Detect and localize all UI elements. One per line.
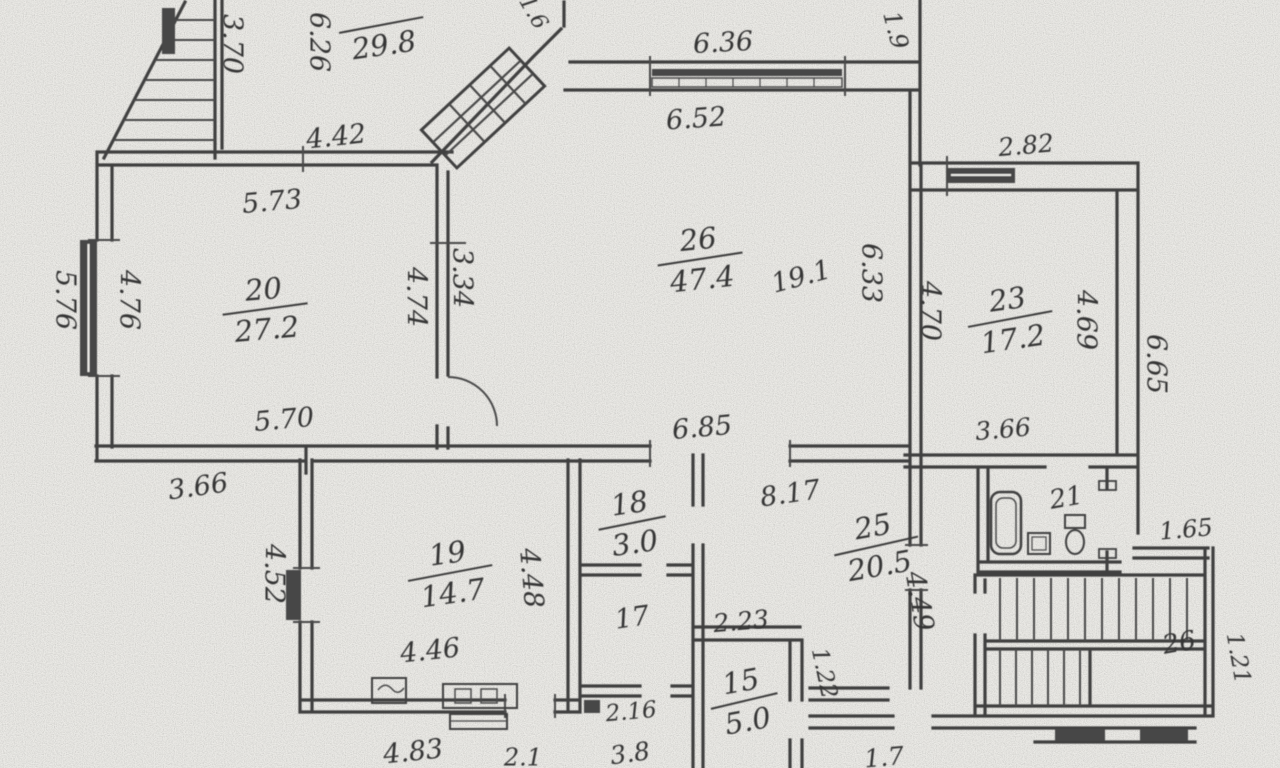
dimension-label: 6.36 [692,26,754,60]
room-number: 26 [1159,625,1198,660]
scan-grain-texture [0,0,1280,768]
dimension-label: 6.26 [304,12,335,72]
dimension-label: 4.46 [398,632,462,669]
room-label-number: 19 [427,534,468,573]
dimension-label: 2.1 [503,743,542,768]
room-label-area: 47.4 [667,259,736,300]
scanned-floor-plan-page: 3.706.264.421.66.361.96.522.825.734.765.… [0,0,1280,768]
room-label-number: 20 [242,271,283,308]
dimension-label: 3.8 [608,736,651,768]
dimension-label: 4.74 [401,266,432,327]
entry-stairs-wall-fill [162,8,175,54]
room-number: 21 [1046,480,1085,515]
dimension-label: 4.76 [114,269,145,330]
dimension-label: 6.33 [856,243,887,303]
window-room26-top [652,69,842,76]
dimension-label: 3.70 [217,14,248,74]
dimension-label: 6.52 [665,101,727,136]
dimension-label: 2.82 [996,128,1055,162]
dimension-label: 4.69 [1071,289,1102,350]
room-label-area: 27.2 [232,309,300,349]
dimension-label: 5.76 [50,270,81,330]
room-label-number: 25 [851,506,894,546]
window-bottom-right-b [1140,729,1188,741]
room-number: 17 [613,600,652,636]
dimension-label: 6.65 [1141,334,1172,394]
closet-fill-216 [584,700,600,713]
dimension-label: 4.83 [381,733,445,768]
dimension-label: 5.70 [253,402,316,438]
room-label-number: 23 [986,280,1028,319]
dimension-label: 2.16 [603,697,657,727]
dimension-label: 3.66 [974,412,1032,446]
room-label-number: 18 [609,484,650,523]
window-bottom-right-a [1055,729,1105,741]
room-label-area: 3.0 [610,523,660,563]
floor-plan-canvas: 3.706.264.421.66.361.96.522.825.734.765.… [0,0,1280,768]
dimension-label: 1.7 [863,741,905,768]
dimension-label: 1.65 [1158,513,1214,546]
dimension-label: 6.85 [671,410,734,446]
dimension-label: 4.70 [915,280,946,341]
dimension-label: 5.73 [241,184,304,220]
dimension-label: 2.23 [711,604,770,638]
dimension-label: 4.42 [304,118,368,155]
dimension-label: 4.48 [513,546,549,610]
room-label-number: 26 [677,220,718,258]
dimension-label: 3.34 [447,248,478,308]
dimension-label: 4.52 [259,543,290,604]
room-label-number: 15 [720,661,762,701]
